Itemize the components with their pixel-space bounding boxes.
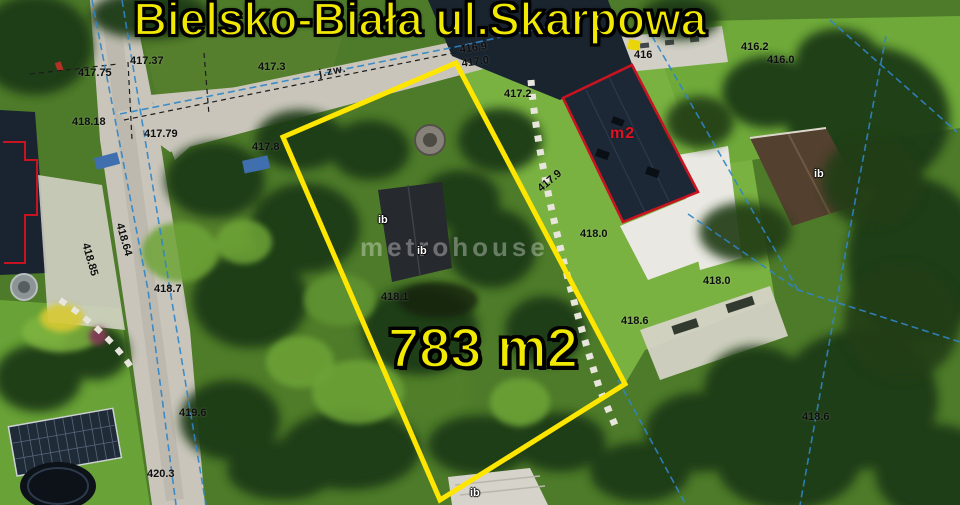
building-label: ib	[378, 215, 388, 226]
building-label: ib	[470, 488, 480, 499]
elevation-label: 418.0	[580, 229, 608, 240]
elevation-label: 417.37	[130, 56, 164, 67]
elevation-label: 416.0	[767, 55, 795, 66]
building-label: ib	[814, 169, 824, 180]
aerial-photo: Bielsko-Biała ul.Skarpowa 783 m2 metroho…	[0, 0, 960, 505]
elevation-label: 420.3	[147, 469, 175, 480]
elevation-label: 418.6	[802, 412, 830, 423]
listing-title: Bielsko-Biała ul.Skarpowa	[134, 0, 707, 42]
plot-area-label: 783 m2	[388, 320, 578, 376]
elevation-label: 418.7	[154, 284, 182, 295]
elevation-label: 417.3	[258, 62, 286, 73]
elevation-label: 419.6	[179, 408, 207, 419]
elevation-label: 417.8	[252, 142, 280, 153]
elevation-label: 417.75	[78, 68, 112, 79]
watermark: metrohouse	[360, 234, 549, 260]
elevation-label: 417.79	[144, 129, 178, 140]
elevation-label: 418.18	[72, 117, 106, 128]
elevation-label: 416	[634, 50, 652, 61]
building-m2-label: m2	[610, 126, 635, 142]
elevation-label: 418.1	[381, 292, 409, 303]
building-label: ib	[417, 246, 427, 257]
elevation-label: 418.0	[703, 276, 731, 287]
elevation-label: 417.2	[504, 89, 532, 100]
elevation-label: 418.6	[621, 316, 649, 327]
elevation-label: 416.2	[741, 42, 769, 53]
